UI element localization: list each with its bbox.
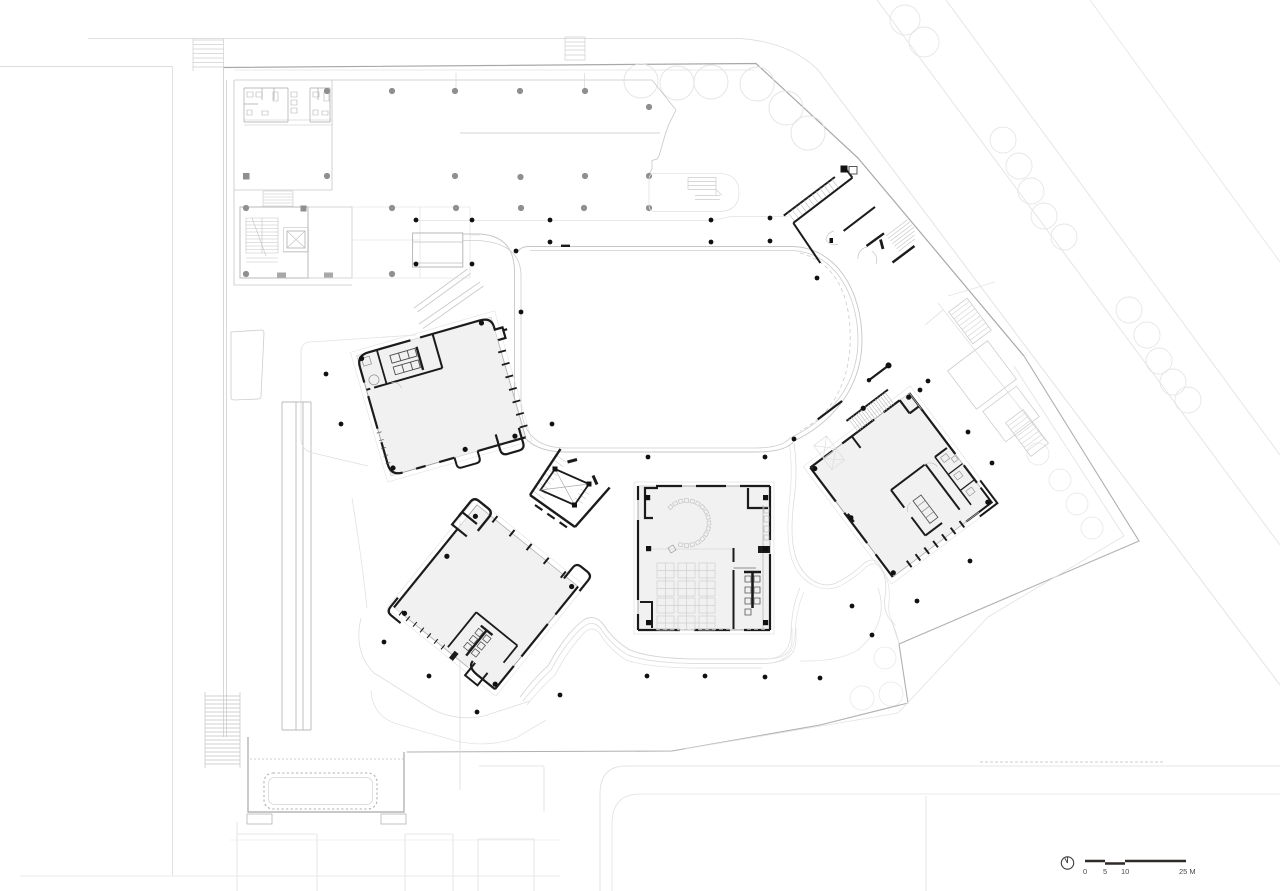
svg-text:25 M: 25 M	[1179, 867, 1196, 876]
svg-text:10: 10	[1121, 867, 1129, 876]
svg-text:5: 5	[1103, 867, 1107, 876]
svg-text:0: 0	[1083, 867, 1087, 876]
